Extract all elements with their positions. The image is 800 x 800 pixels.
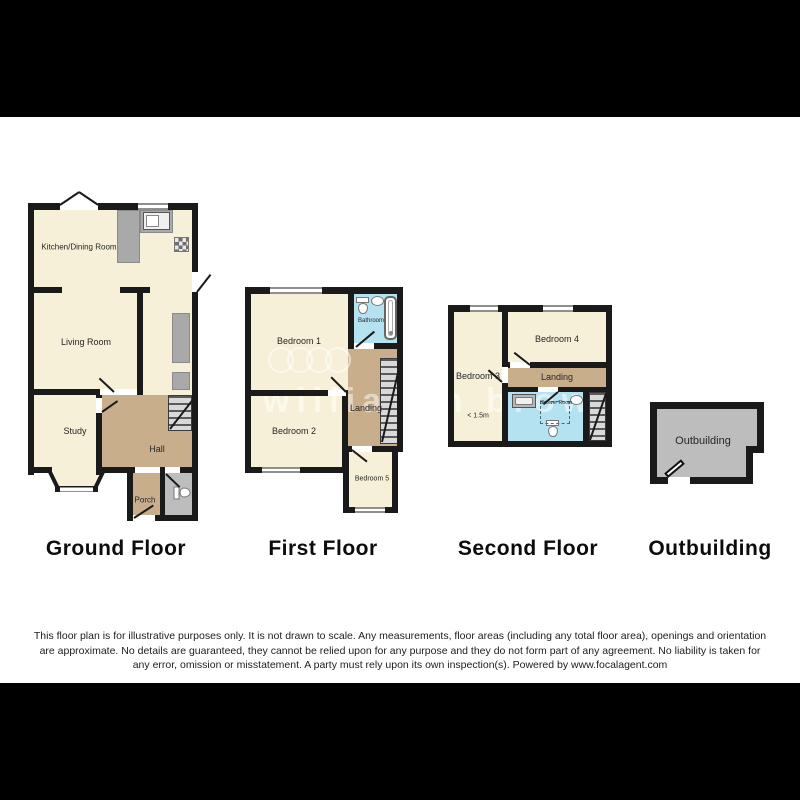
- wall-segment: [583, 387, 589, 441]
- room-label-bedroom3: Bedroom 3: [456, 371, 500, 381]
- wall-segment: [650, 402, 764, 409]
- toilet-icon: [356, 297, 369, 315]
- room-label-hall: Hall: [149, 444, 165, 454]
- wall-segment: [245, 287, 403, 294]
- vanity-sink-icon: [512, 394, 536, 408]
- kitchen-sink-icon: [143, 212, 170, 230]
- basin-icon: [371, 296, 384, 306]
- wall-segment: [160, 473, 165, 517]
- wall-segment: [746, 446, 753, 484]
- toilet-icon: [174, 487, 192, 500]
- window-icon: [355, 507, 385, 513]
- wall-segment: [28, 287, 62, 293]
- wall-segment: [348, 294, 354, 349]
- room-label-outbuilding: Outbuilding: [675, 435, 731, 447]
- door-opening: [165, 467, 180, 473]
- bath-icon: [384, 296, 397, 340]
- room-label-bathroom: Bathroom: [358, 318, 384, 324]
- floor-title-outbuilding: Outbuilding: [648, 537, 771, 561]
- wall-segment: [343, 446, 349, 513]
- height-note-label: < 1.5m: [467, 413, 489, 420]
- window-icon: [60, 487, 93, 492]
- door-opening: [668, 477, 690, 484]
- door-opening: [60, 203, 98, 210]
- room-label-study: Study: [63, 426, 86, 436]
- hob-icon: [174, 237, 189, 252]
- window-icon: [138, 203, 168, 210]
- room-label-kitchen-dining: Kitchen/Dining Room: [41, 243, 116, 252]
- window-icon: [470, 305, 498, 312]
- floorplan-image: william h brown: [0, 0, 800, 800]
- wall-segment: [192, 203, 198, 521]
- room-label-landing-second: Landing: [541, 372, 573, 382]
- wall-segment: [448, 441, 612, 447]
- wall-segment: [650, 402, 657, 484]
- window-icon: [270, 287, 322, 294]
- wall-segment: [650, 477, 753, 484]
- wall-segment: [28, 203, 198, 210]
- wall-segment: [28, 203, 34, 475]
- window-icon: [543, 305, 573, 312]
- wall-segment: [137, 290, 143, 395]
- wall-segment: [120, 287, 150, 293]
- room-label-bedroom4: Bedroom 4: [535, 334, 579, 344]
- floor-title-first: First Floor: [268, 537, 377, 561]
- disclaimer-text: This floor plan is for illustrative purp…: [30, 629, 770, 673]
- floor-title-ground: Ground Floor: [46, 537, 186, 561]
- wall-segment: [606, 305, 612, 447]
- wall-segment: [127, 473, 133, 521]
- wall-segment: [392, 446, 398, 513]
- floor-title-second: Second Floor: [458, 537, 598, 561]
- room-label-shower: Shower Room: [540, 400, 572, 405]
- room-label-landing-first: Landing: [350, 403, 382, 413]
- door-opening: [538, 387, 558, 392]
- sink-bowl: [146, 215, 159, 227]
- room-label-bedroom1: Bedroom 1: [277, 336, 321, 346]
- wall-segment: [448, 305, 454, 447]
- room-label-bedroom2: Bedroom 2: [272, 426, 316, 436]
- window-icon: [262, 467, 300, 473]
- room-label-bedroom5: Bedroom 5: [355, 476, 389, 483]
- wall-segment: [28, 389, 100, 395]
- room-label-living: Living Room: [61, 337, 111, 347]
- wall-segment: [245, 287, 251, 473]
- room-label-porch: Porch: [135, 496, 156, 505]
